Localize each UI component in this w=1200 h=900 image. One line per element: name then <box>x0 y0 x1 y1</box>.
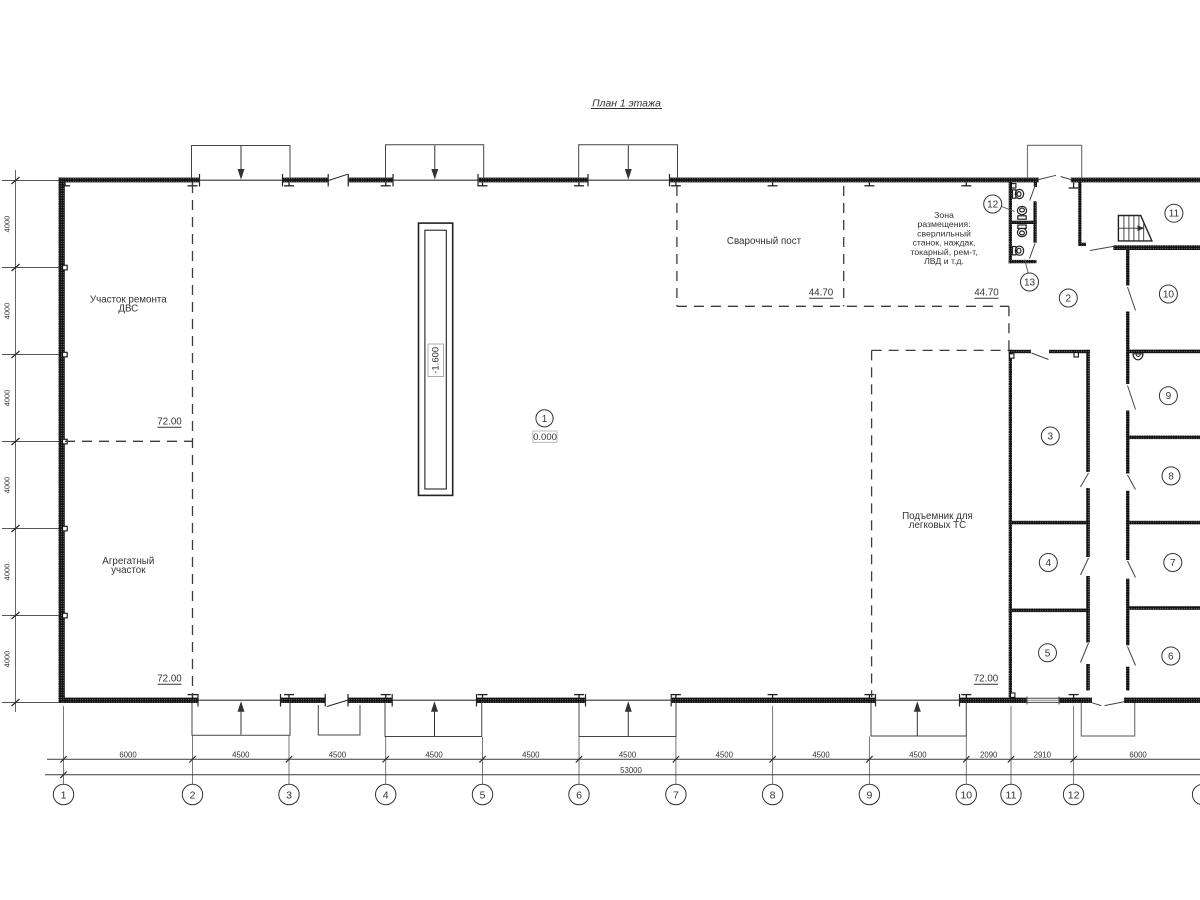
svg-text:План 1 этажа: План 1 этажа <box>592 98 661 109</box>
svg-text:4000: 4000 <box>3 303 12 320</box>
svg-text:44.70: 44.70 <box>809 288 834 299</box>
svg-text:легковых ТС: легковых ТС <box>909 520 967 531</box>
svg-text:6000: 6000 <box>1129 750 1147 759</box>
svg-text:6000: 6000 <box>119 750 137 759</box>
svg-text:3: 3 <box>1048 432 1054 443</box>
svg-text:10: 10 <box>1163 290 1175 301</box>
svg-text:12: 12 <box>987 200 999 211</box>
svg-text:9: 9 <box>1166 391 1172 402</box>
svg-text:3: 3 <box>286 789 292 801</box>
svg-text:7: 7 <box>1170 558 1176 569</box>
svg-text:5: 5 <box>480 789 486 801</box>
svg-text:2910: 2910 <box>1034 750 1052 759</box>
svg-text:8: 8 <box>770 789 776 801</box>
svg-text:72.00: 72.00 <box>157 417 182 428</box>
svg-text:4500: 4500 <box>909 750 927 759</box>
svg-text:6: 6 <box>1168 652 1174 663</box>
svg-text:11: 11 <box>1169 209 1180 220</box>
svg-text:72.00: 72.00 <box>157 674 182 685</box>
svg-text:4500: 4500 <box>619 750 637 759</box>
svg-text:2: 2 <box>190 789 196 801</box>
svg-text:53000: 53000 <box>620 766 642 775</box>
svg-text:4500: 4500 <box>329 750 347 759</box>
svg-text:2: 2 <box>1066 294 1072 305</box>
svg-text:4000: 4000 <box>3 564 12 581</box>
svg-text:12: 12 <box>1068 789 1080 801</box>
svg-text:4500: 4500 <box>425 750 443 759</box>
svg-text:-1.600: -1.600 <box>430 347 441 374</box>
svg-text:1: 1 <box>61 789 67 801</box>
svg-text:4500: 4500 <box>232 750 250 759</box>
svg-text:44.70: 44.70 <box>974 288 999 299</box>
svg-text:4000: 4000 <box>3 477 12 494</box>
svg-text:7: 7 <box>673 789 679 801</box>
svg-text:4: 4 <box>383 789 389 801</box>
svg-text:ДВС: ДВС <box>118 304 138 315</box>
svg-text:2090: 2090 <box>980 750 998 759</box>
svg-text:11: 11 <box>1006 789 1017 801</box>
svg-text:4000: 4000 <box>3 390 12 407</box>
svg-text:участок: участок <box>111 565 146 576</box>
svg-text:13: 13 <box>1024 278 1036 289</box>
svg-text:ЛВД и т.д.: ЛВД и т.д. <box>924 256 964 266</box>
svg-text:5: 5 <box>1045 648 1051 659</box>
svg-text:4000: 4000 <box>3 651 12 668</box>
svg-text:9: 9 <box>866 789 872 801</box>
svg-text:Сварочный пост: Сварочный пост <box>727 236 802 247</box>
svg-text:4000: 4000 <box>3 216 12 233</box>
svg-text:72.00: 72.00 <box>974 674 999 685</box>
svg-text:6: 6 <box>576 789 582 801</box>
svg-text:4500: 4500 <box>522 750 540 759</box>
svg-text:4500: 4500 <box>812 750 830 759</box>
svg-text:10: 10 <box>960 789 972 801</box>
svg-text:4: 4 <box>1046 558 1052 569</box>
svg-text:8: 8 <box>1168 471 1174 482</box>
svg-text:0.000: 0.000 <box>533 432 557 443</box>
svg-text:4500: 4500 <box>716 750 734 759</box>
svg-text:1: 1 <box>542 414 548 425</box>
